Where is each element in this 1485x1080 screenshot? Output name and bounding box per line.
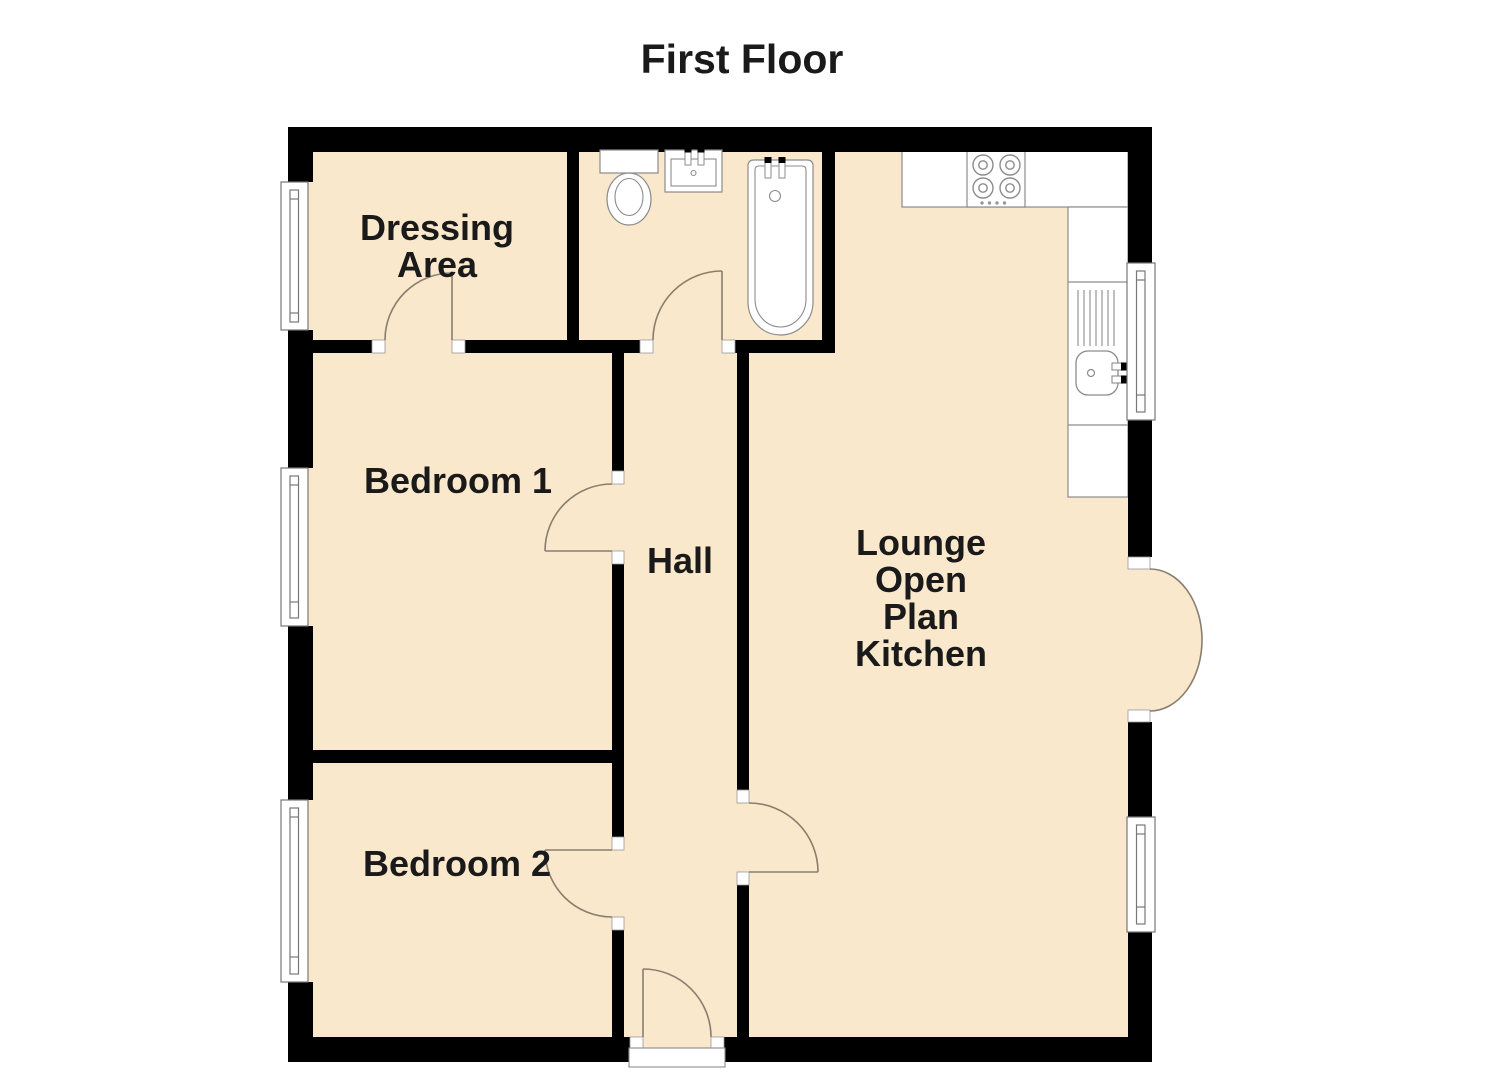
wall-segment <box>822 152 835 353</box>
window-lounge <box>1127 817 1155 932</box>
room-label-lounge-line3: Plan <box>883 596 959 637</box>
floor-plan-page: First Floor Dressing Area Bedroom 1 Hall… <box>0 0 1485 1080</box>
window-bedroom2 <box>281 800 308 982</box>
wash-basin-icon <box>665 147 722 193</box>
page-title: First Floor <box>641 36 844 82</box>
wall-segment <box>612 353 624 471</box>
window-dressing-area <box>281 182 308 330</box>
wall-segment <box>465 340 640 353</box>
wall-segment <box>1128 420 1152 557</box>
entrance-threshold <box>629 1048 725 1067</box>
wall-segment <box>612 930 624 1037</box>
wall-segment <box>313 340 372 353</box>
wall-segment <box>288 626 313 800</box>
wall-segment <box>723 1037 1152 1062</box>
room-label-dressing-line1: Dressing <box>360 207 514 248</box>
room-label-lounge-line2: Open <box>875 559 967 600</box>
room-label-lounge-line1: Lounge <box>856 522 986 563</box>
room-label-lounge-line4: Kitchen <box>855 633 987 674</box>
window-bedroom1 <box>281 468 308 626</box>
wall-segment <box>288 127 313 182</box>
room-label-bedroom2: Bedroom 2 <box>363 843 551 884</box>
french-door-swing-area <box>1128 569 1202 711</box>
wall-segment <box>567 152 579 353</box>
window-kitchen <box>1127 263 1155 420</box>
wall-segment <box>288 330 313 468</box>
wall-segment <box>735 340 835 353</box>
wall-segment <box>737 885 749 1037</box>
floor-plan-drawing: First Floor Dressing Area Bedroom 1 Hall… <box>0 0 1485 1080</box>
wall-segment <box>1128 127 1152 263</box>
wall-segment <box>737 353 749 790</box>
wall-segment <box>288 1037 631 1062</box>
room-label-hall: Hall <box>647 540 713 581</box>
wall-segment <box>612 564 624 837</box>
wall-segment <box>288 127 1152 152</box>
room-label-dressing-line2: Area <box>397 244 478 285</box>
wall-segment <box>1128 722 1152 817</box>
wall-segment <box>288 750 624 763</box>
room-label-bedroom1: Bedroom 1 <box>364 460 552 501</box>
bath-icon <box>748 157 813 335</box>
